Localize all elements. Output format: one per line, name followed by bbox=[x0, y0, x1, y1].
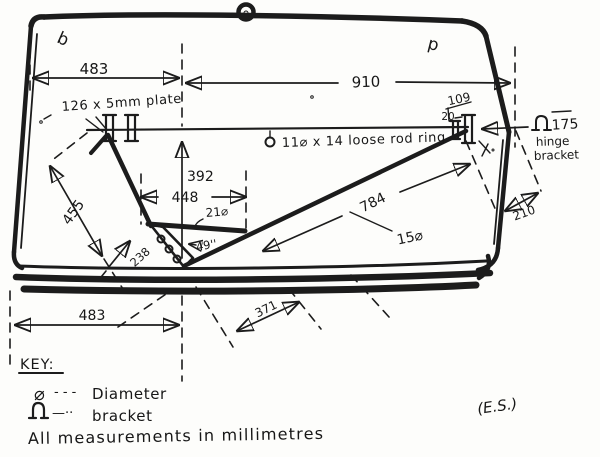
key-diameter-dashes: - - - bbox=[54, 385, 77, 400]
hinge-value-label: 175 bbox=[551, 116, 579, 133]
hinge-rod bbox=[87, 127, 468, 130]
dim-21-label: 21⌀ bbox=[205, 204, 229, 220]
guide-483-bottom-wedge bbox=[118, 292, 169, 327]
right-clip-large bbox=[462, 115, 475, 143]
hinge-leader-arrow bbox=[482, 127, 528, 129]
clasp-ring bbox=[239, 5, 254, 20]
dim-483-top: 483 bbox=[33, 60, 179, 78]
rod-ring-icon bbox=[266, 138, 275, 147]
hinge-word-1: hinge bbox=[536, 134, 570, 149]
dim-20-label: 20 bbox=[441, 111, 454, 123]
dim-784-label: 784 bbox=[357, 190, 388, 216]
dim-448-label: 448 bbox=[172, 190, 199, 206]
note-plate: 126 x 5mm plate bbox=[40, 92, 183, 132]
note-hinge-bracket: 175 hinge bracket bbox=[482, 111, 579, 163]
guide-455-lower bbox=[104, 259, 123, 289]
guide-371-left-rail bbox=[196, 287, 233, 347]
dim-15: 15⌀ bbox=[350, 212, 425, 249]
rod-ring-label: 11⌀ x 14 loose rod ring bbox=[282, 130, 447, 151]
sketch-page: b p bbox=[0, 0, 600, 457]
dim-910-line-right bbox=[396, 82, 510, 83]
dim-371: 371 bbox=[237, 298, 299, 331]
plate-note-label: 126 x 5mm plate bbox=[61, 92, 182, 115]
dim-392-label: 392 bbox=[187, 169, 214, 185]
signature: (E.S.) bbox=[476, 395, 518, 418]
key-bracket-label: bracket bbox=[92, 407, 153, 425]
pen-mark-right: p bbox=[426, 34, 441, 56]
clasp-ring-outer bbox=[239, 5, 254, 20]
dim-238: 238 bbox=[108, 241, 153, 270]
key-title: KEY: bbox=[20, 357, 55, 373]
left-clip-2 bbox=[125, 115, 138, 141]
hinge-word-2: bracket bbox=[534, 147, 580, 163]
dim-15-label: 15⌀ bbox=[395, 227, 425, 248]
guide-371-outer-rail bbox=[351, 275, 389, 317]
dim-910-label: 910 bbox=[351, 73, 380, 92]
case-bottom-edge bbox=[18, 261, 486, 268]
case-outline bbox=[14, 15, 509, 291]
right-bracket-dot bbox=[492, 149, 494, 151]
case-bottom-rim-band-2 bbox=[24, 285, 476, 291]
key-bracket-dashes: —·· bbox=[52, 406, 73, 421]
dim-784-line-right bbox=[400, 164, 470, 192]
case-top-left-corner bbox=[31, 17, 44, 26]
vee-top-bar bbox=[148, 224, 245, 231]
case-bottom-rim-band bbox=[16, 273, 490, 280]
hinge-value-overbar bbox=[552, 111, 571, 112]
dim-109-20: 109 20 bbox=[441, 90, 471, 123]
dim-455: 455 bbox=[50, 166, 102, 256]
stray-dot bbox=[311, 96, 314, 99]
dim-21: 21⌀ bbox=[195, 204, 229, 227]
guide-right-bracket-diag bbox=[466, 141, 497, 213]
dim-210: 210 bbox=[505, 193, 538, 223]
plate-note-leader-dash bbox=[44, 115, 51, 119]
pen-marks: b p bbox=[54, 28, 441, 56]
vee-frame bbox=[108, 131, 466, 267]
dim-483-bottom: 483 bbox=[15, 308, 179, 325]
left-bracket-stub bbox=[91, 136, 106, 153]
vee-left-diagonal bbox=[108, 135, 151, 226]
guide-455-upper bbox=[50, 133, 87, 162]
dim-483-top-label: 483 bbox=[80, 60, 109, 78]
key-diameter-label: Diameter bbox=[92, 385, 167, 403]
sketch-canvas: b p bbox=[0, 0, 600, 457]
signature-text: (E.S.) bbox=[476, 395, 518, 418]
guide-371-right-rail bbox=[289, 289, 321, 329]
dim-20-tick bbox=[455, 117, 462, 118]
pen-mark-left: b bbox=[54, 28, 72, 51]
key-block: KEY: ⌀ - - - Diameter —·· bracket All me… bbox=[19, 357, 324, 448]
case-right-upper-edge bbox=[486, 36, 509, 132]
dim-483-bottom-label: 483 bbox=[79, 308, 106, 324]
case-right-lower-edge bbox=[498, 132, 509, 248]
dim-448: 448 bbox=[141, 190, 246, 206]
dim-15-leader bbox=[350, 212, 392, 231]
plate-note-leader-dot bbox=[40, 121, 43, 124]
dim-238-line bbox=[108, 241, 130, 268]
key-diameter-symbol: ⌀ bbox=[34, 384, 45, 405]
dim-238-label: 238 bbox=[127, 244, 153, 269]
case-top-right-corner bbox=[462, 21, 486, 36]
long-rod bbox=[184, 131, 466, 266]
key-note: All measurements in millimetres bbox=[28, 424, 325, 448]
bracket-symbol-icon bbox=[532, 116, 551, 130]
note-rod-ring: 11⌀ x 14 loose rod ring bbox=[266, 130, 447, 151]
key-bracket-symbol-icon bbox=[29, 403, 48, 418]
